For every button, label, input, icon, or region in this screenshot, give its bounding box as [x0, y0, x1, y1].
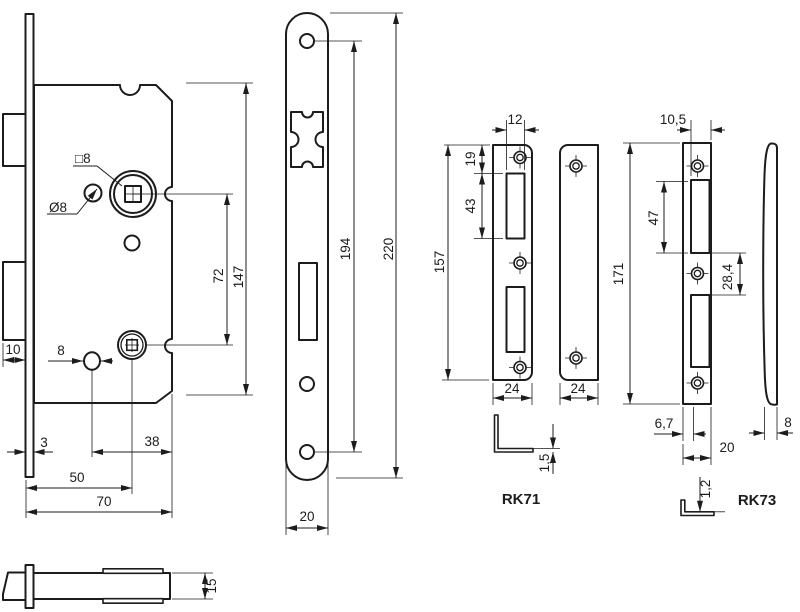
faceplate-strip — [26, 14, 34, 477]
rk71-length-label: 157 — [432, 251, 447, 274]
fixing-hole — [125, 236, 140, 251]
deadbolt — [3, 262, 26, 340]
faceplate-screw-hole-bottom — [300, 445, 314, 459]
faceplate-screw-hole-mid — [300, 377, 314, 391]
rk71-side-plate — [560, 145, 598, 380]
rk73-slot-bottom — [691, 295, 710, 367]
faceplate-thickness-label: 3 — [40, 435, 48, 450]
latch-top-view — [3, 573, 26, 601]
deadbolt-cutout — [299, 263, 317, 340]
technical-drawing-page: □8 Ø8 8 10 3 — [0, 0, 800, 612]
hole-dia-label: 8 — [57, 343, 65, 358]
rk71-top-to-slot-label: 19 — [463, 151, 478, 166]
wc-follower — [118, 331, 146, 359]
follower-round-hole — [85, 185, 102, 202]
rk71-slot-width-label: 12 — [507, 112, 522, 127]
case-depth-label: 70 — [96, 494, 111, 509]
rk73-slot-width-label: 10,5 — [660, 112, 686, 127]
case-top-view — [34, 573, 171, 599]
rk73-thickness-label: 1,2 — [698, 480, 713, 499]
hole-to-back-label: 38 — [144, 434, 159, 449]
rk71-slot-bottom — [507, 287, 525, 352]
rk73-side-profile — [763, 143, 777, 404]
square-spindle-label: □8 — [75, 151, 91, 166]
backset-label: 50 — [69, 470, 84, 485]
faceplate-length-label: 220 — [381, 238, 396, 261]
flange-top — [103, 569, 163, 574]
flange-bottom — [103, 599, 163, 604]
rk71-width-front-label: 24 — [504, 381, 520, 396]
screw-centres-label: 194 — [338, 237, 353, 260]
rk71-thickness-label: 1,5 — [537, 454, 552, 473]
rk73-slot-length-label: 47 — [646, 210, 661, 225]
bolt-throw-label: 10 — [5, 342, 20, 357]
faceplate-screw-hole-top — [300, 34, 314, 48]
rk73-title: RK73 — [738, 492, 776, 509]
rk73-length-label: 171 — [611, 263, 626, 286]
lower-hole — [84, 352, 100, 370]
faceplate-outline — [286, 13, 328, 480]
case-thickness-label: 15 — [204, 578, 219, 593]
rk71-slot-length-label: 43 — [463, 198, 478, 213]
rk73-slot-gap-label: 28,4 — [720, 263, 735, 290]
lock-case-outline — [34, 85, 172, 403]
rk73-width-label: 20 — [719, 440, 734, 455]
follower-hole-label: Ø8 — [49, 200, 67, 215]
mortise-lock-drawing: □8 Ø8 8 10 3 — [0, 0, 800, 612]
case-height-label: 147 — [231, 266, 246, 289]
rk73-edge-to-slot-label: 6,7 — [655, 416, 674, 431]
rk73-side-width-label: 8 — [784, 415, 792, 430]
rk73-slot-top — [691, 180, 710, 253]
latch-bolt — [3, 114, 26, 166]
rk71-title: RK71 — [502, 491, 540, 508]
faceplate-width-label: 20 — [299, 509, 314, 524]
centre-distance-label: 72 — [211, 268, 226, 283]
rk71-slot-top — [507, 174, 525, 239]
faceplate-top-view — [26, 565, 34, 608]
rk71-width-side-label: 24 — [570, 381, 586, 396]
